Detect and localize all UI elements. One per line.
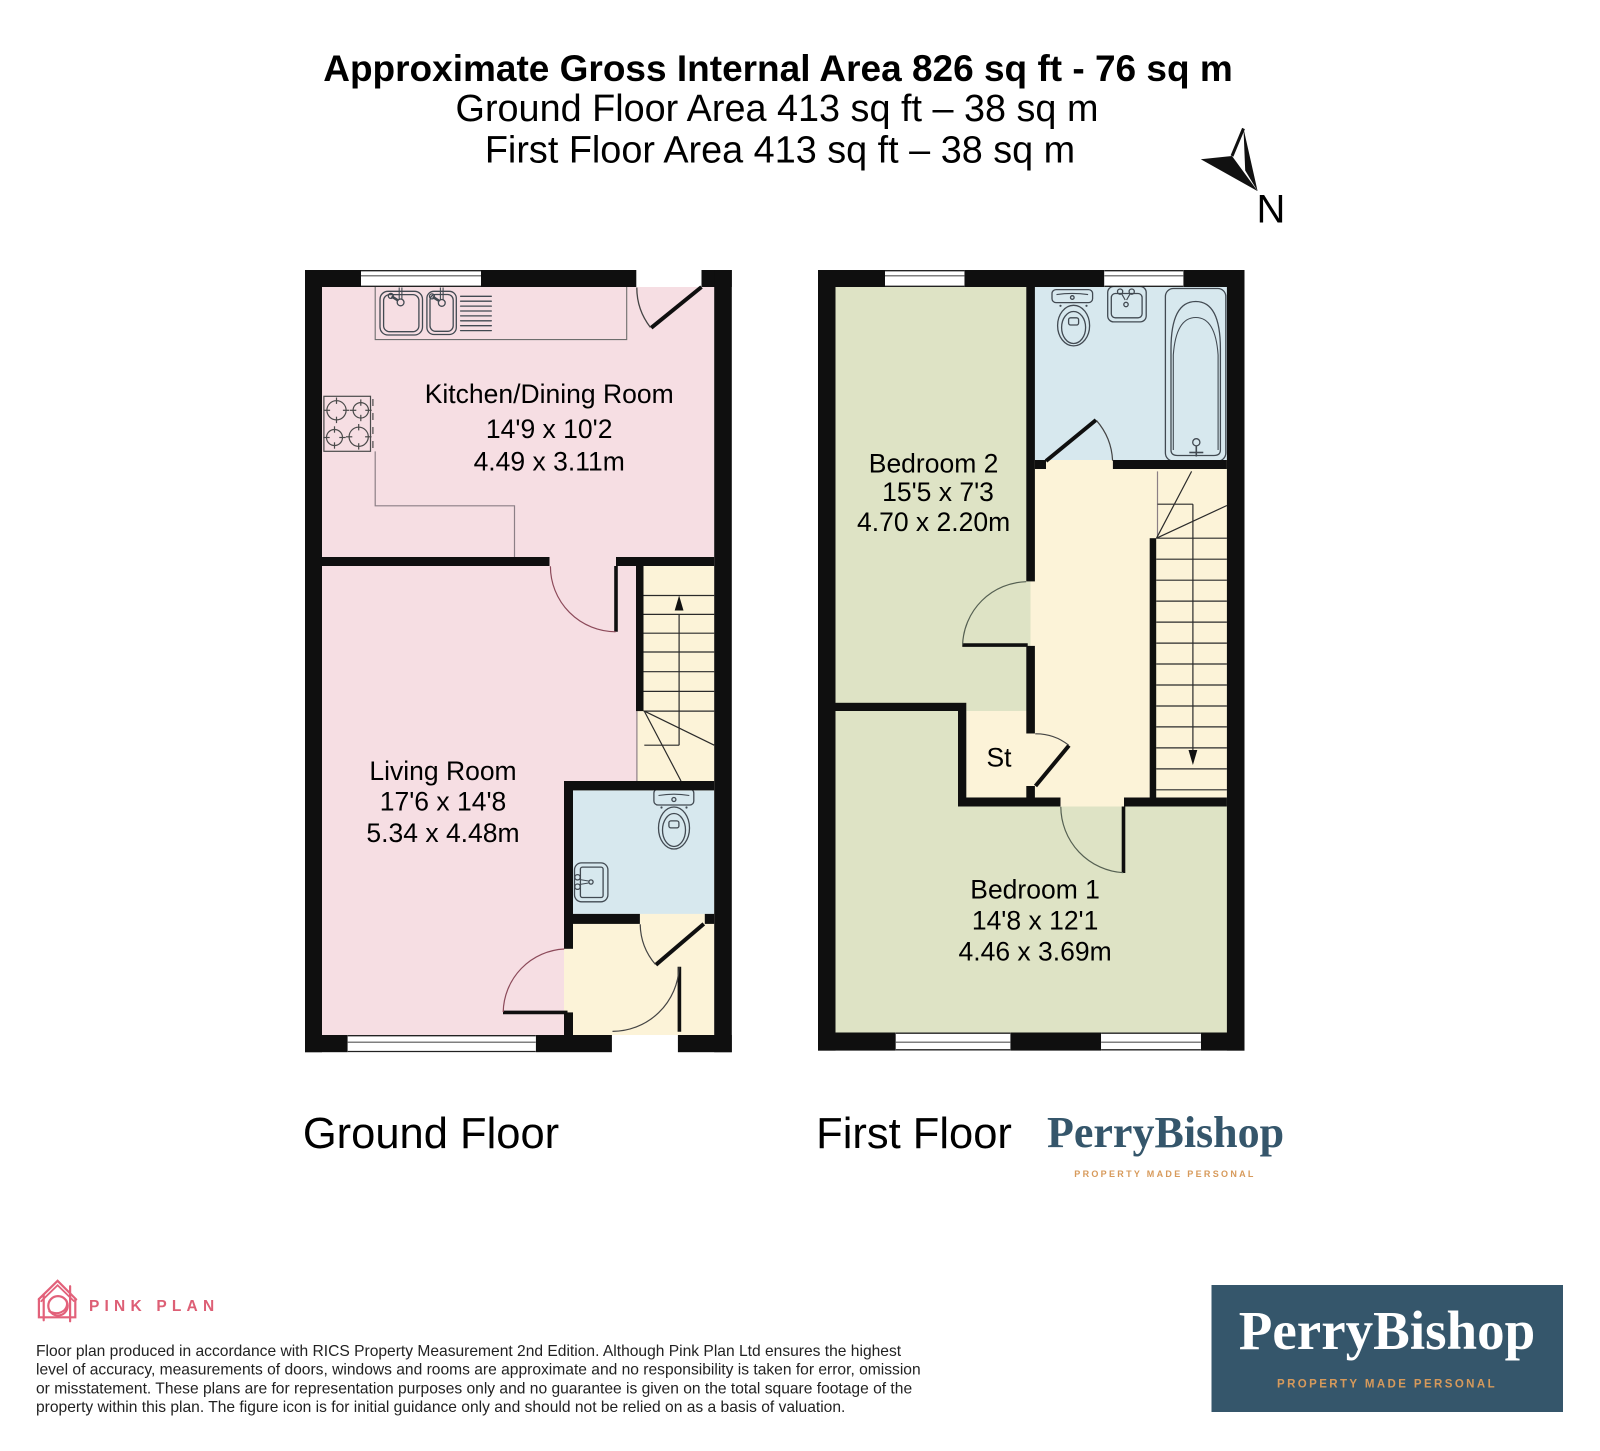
svg-text:5.34 x 4.48m: 5.34 x 4.48m (366, 818, 519, 848)
svg-text:PerryBishop: PerryBishop (1239, 1300, 1535, 1361)
svg-text:Floor plan produced in accorda: Floor plan produced in accordance with R… (36, 1343, 902, 1360)
svg-text:4.46 x 3.69m: 4.46 x 3.69m (958, 937, 1111, 967)
svg-text:PROPERTY MADE PERSONAL: PROPERTY MADE PERSONAL (1277, 1379, 1497, 1391)
svg-text:Ground Floor Area 413 sq ft –: Ground Floor Area 413 sq ft – 38 sq m (456, 88, 1099, 130)
svg-text:Bedroom 2: Bedroom 2 (869, 449, 999, 479)
svg-text:First Floor: First Floor (816, 1110, 1012, 1158)
svg-text:PROPERTY MADE PERSONAL: PROPERTY MADE PERSONAL (1074, 1169, 1255, 1179)
svg-text:14'8 x 12'1: 14'8 x 12'1 (972, 906, 1099, 936)
svg-text:N: N (1257, 188, 1286, 232)
svg-text:First Floor Area 413 sq ft – 3: First Floor Area 413 sq ft – 38 sq m (485, 130, 1075, 172)
svg-text:level of accuracy, measurement: level of accuracy, measurements of doors… (36, 1362, 921, 1379)
svg-text:4.70 x 2.20m: 4.70 x 2.20m (857, 507, 1010, 537)
svg-text:15'5 x 7'3: 15'5 x 7'3 (882, 477, 994, 507)
svg-text:St: St (986, 743, 1012, 773)
svg-text:Ground Floor: Ground Floor (303, 1110, 559, 1158)
svg-text:PINK PLAN: PINK PLAN (89, 1298, 219, 1315)
svg-text:Living Room: Living Room (369, 756, 516, 786)
svg-text:property within this plan. The: property within this plan. The figure ic… (36, 1399, 845, 1416)
svg-text:Approximate Gross Internal Are: Approximate Gross Internal Area 826 sq f… (323, 48, 1233, 89)
svg-text:or misstatement. These plans a: or misstatement. These plans are for rep… (36, 1380, 912, 1397)
svg-text:4.49 x 3.11m: 4.49 x 3.11m (474, 447, 625, 477)
svg-text:14'9 x 10'2: 14'9 x 10'2 (486, 414, 613, 444)
svg-text:Bedroom 1: Bedroom 1 (970, 875, 1100, 905)
svg-text:PerryBishop: PerryBishop (1047, 1108, 1284, 1157)
svg-text:Kitchen/Dining Room: Kitchen/Dining Room (425, 379, 674, 409)
svg-text:17'6 x 14'8: 17'6 x 14'8 (380, 787, 507, 817)
